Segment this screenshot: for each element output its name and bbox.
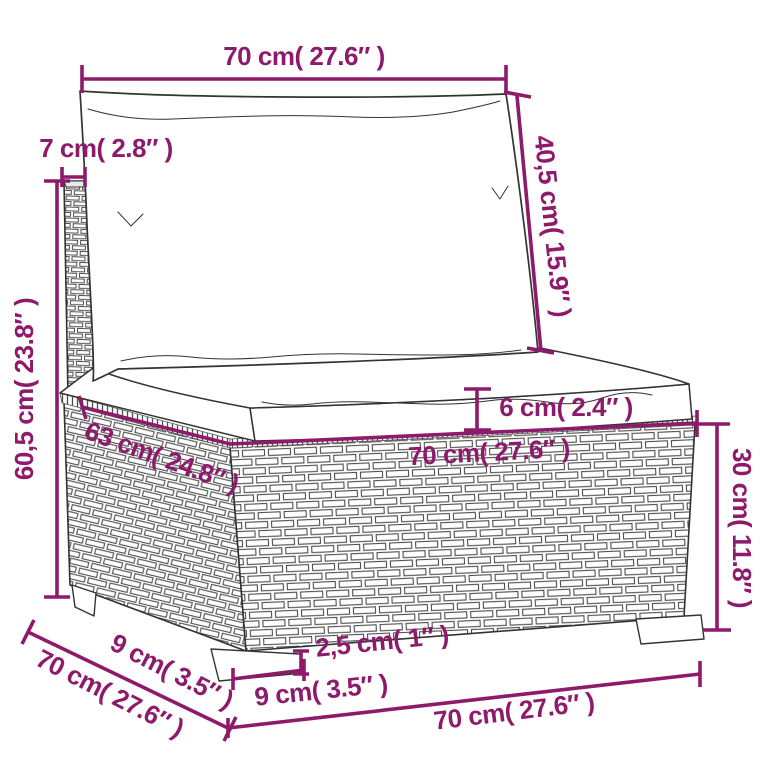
dim-base-height-label: 30 cm( 11.8″ ) — [729, 448, 755, 608]
dim-seat-thickness-label: 6 cm( 2.4″ ) — [499, 394, 633, 420]
dim-back-width-label: 70 cm( 27.6″ ) — [223, 43, 385, 69]
dim-back-thickness-label: 7 cm( 2.8″ ) — [39, 135, 173, 161]
sofa-line-art — [60, 91, 704, 681]
dim-seat-width-label: 70 cm( 27.6″ ) — [408, 435, 571, 469]
diagram-stage: 70 cm( 27.6″ ) 7 cm( 2.8″ ) 40,5 cm( 15.… — [0, 0, 767, 767]
leg-front-right — [636, 615, 704, 644]
dim-base-height-line — [692, 424, 731, 630]
dim-back-height-label: 60,5 cm( 23.8″ ) — [11, 298, 37, 480]
